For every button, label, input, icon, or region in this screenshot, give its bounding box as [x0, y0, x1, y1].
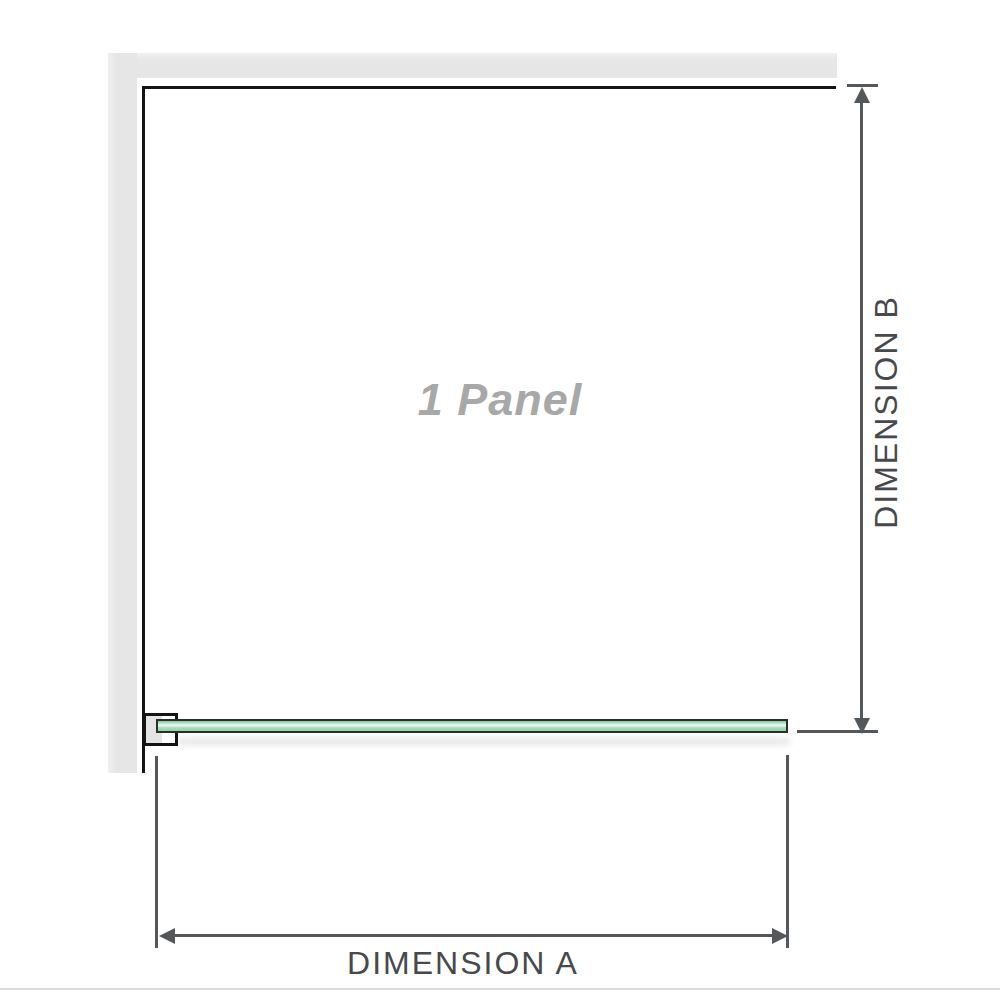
- glass-panel-shadow: [178, 738, 790, 745]
- dimension-a-line: [172, 934, 773, 937]
- dimension-a-extension-right: [786, 755, 789, 948]
- arrow-up-icon: [854, 87, 870, 103]
- enclosure-top-edge: [142, 86, 836, 89]
- arrow-right-icon: [772, 928, 788, 944]
- glass-panel: [156, 719, 788, 733]
- dimension-b-line: [860, 99, 863, 721]
- arrow-down-icon: [854, 718, 870, 734]
- wall-left: [108, 53, 137, 773]
- enclosure-left-edge: [142, 86, 145, 773]
- dimension-b-label: DIMENSION B: [868, 295, 905, 529]
- panel-count-label: 1 Panel: [418, 374, 583, 426]
- footer-divider: [0, 988, 1000, 990]
- dimension-a-label: DIMENSION A: [347, 945, 579, 982]
- wall-top: [108, 53, 837, 78]
- shower-screen-dimension-diagram: 1 Panel DIMENSION B DIMENSION A: [0, 0, 1000, 1000]
- dimension-a-extension-left: [155, 756, 158, 948]
- arrow-left-icon: [159, 928, 175, 944]
